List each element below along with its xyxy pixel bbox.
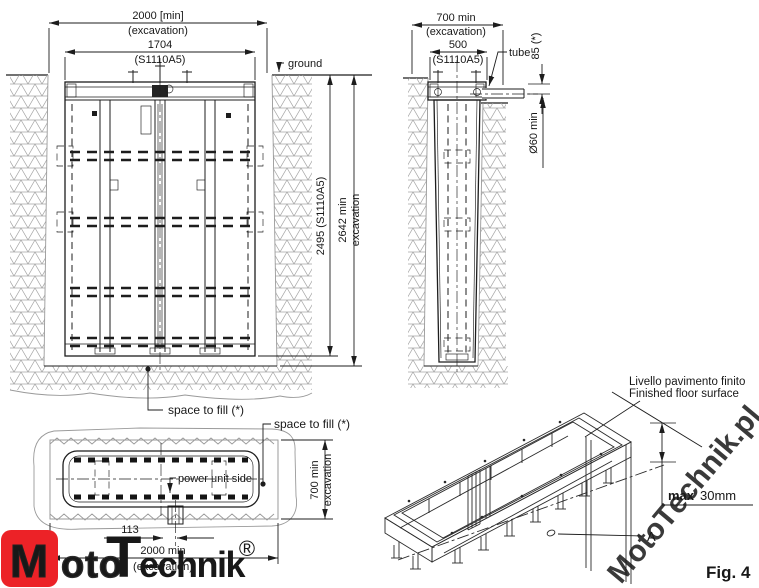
dim-side-frame-width-sub: (S1110A5) [433, 54, 484, 66]
dim-excavation-width-sub: (excavation) [128, 25, 188, 37]
lift-frame-plan [56, 443, 266, 546]
earth-hatch-left [10, 75, 48, 366]
logo-letter-m: M [10, 535, 48, 587]
side-view: 700 min (excavation) 500 (S1110A5) tube … [403, 12, 550, 388]
dim-excavation-width-label: 2000 [min] [132, 10, 183, 22]
dim-tube-height-label: 85 (*) [530, 33, 542, 60]
dim-frame-width-sub: (S1110A5) [135, 54, 186, 66]
space-to-fill-label-plan: space to fill (*) [274, 417, 350, 431]
earth-hatch-bottom [10, 366, 312, 390]
logo-letter-t: T [106, 525, 141, 588]
dim-side-excavation-width-sub: (excavation) [426, 26, 486, 38]
dim-tube-diameter-label: Ø60 min [528, 112, 540, 154]
dim-frame-depth-label: 2495 (S1110A5) [315, 177, 327, 255]
front-view: 2000 [min] (excavation) 1704 (S1110A5) g… [6, 10, 372, 417]
earth-hatch-right [272, 75, 312, 366]
earth-hatch-plan [34, 428, 297, 529]
floor-label-english: Finished floor surface [629, 388, 739, 400]
moto-technik-logo: M oto T echnik ® [1, 525, 255, 588]
dim-plan-depth-label-2: excavation [322, 454, 334, 507]
technical-drawing: 2000 [min] (excavation) 1704 (S1110A5) g… [0, 0, 759, 588]
dim-excavation-depth-label-1: 2642 min [337, 197, 349, 242]
drawing-page: 2000 [min] (excavation) 1704 (S1110A5) g… [0, 0, 759, 588]
dim-frame-width-label: 1704 [148, 39, 172, 51]
ground-label: ground [288, 58, 322, 70]
registered-trademark-icon: ® [239, 536, 255, 561]
earth-hatch-bottom-side [408, 366, 508, 388]
side-view-dimensions: 700 min (excavation) 500 (S1110A5) tube … [412, 12, 550, 168]
space-to-fill-label-front: space to fill (*) [168, 403, 244, 417]
detail-hole [546, 529, 555, 537]
logo-echnik: echnik [139, 544, 247, 585]
dim-plan-depth-label-1: 700 min [309, 460, 321, 499]
floor-label-italian: Livello pavimento finito [629, 376, 745, 388]
tube-label: tube [509, 47, 530, 59]
lift-frame-front [57, 58, 263, 372]
dim-excavation-depth-label-2: excavation [350, 194, 362, 247]
dim-side-excavation-width-label: 700 min [436, 12, 475, 24]
power-unit-side-label: power unit side [178, 473, 252, 485]
tube-shape [482, 88, 524, 99]
figure-label: Fig. 4 [706, 563, 751, 582]
dim-side-frame-width-label: 500 [449, 39, 467, 51]
